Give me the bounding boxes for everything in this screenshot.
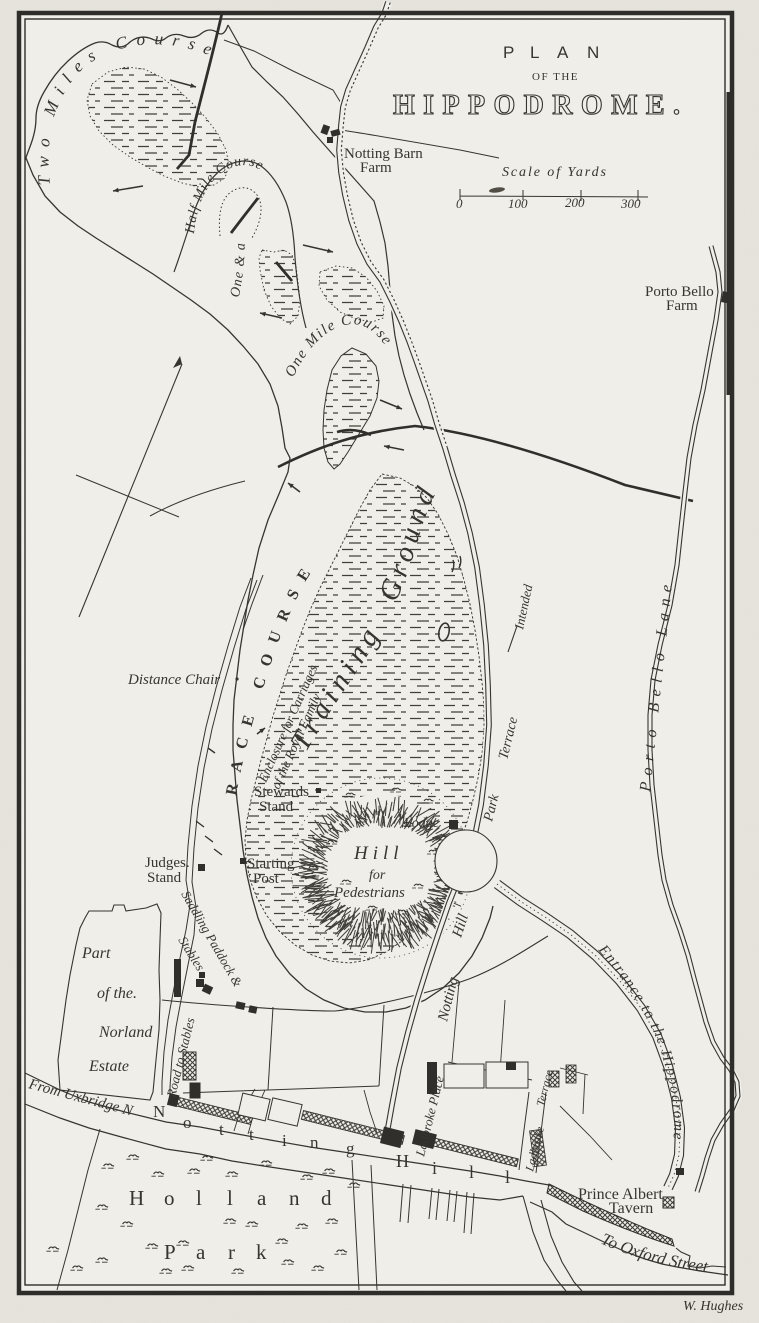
svg-text:W. Hughes: W. Hughes [683,1299,744,1314]
